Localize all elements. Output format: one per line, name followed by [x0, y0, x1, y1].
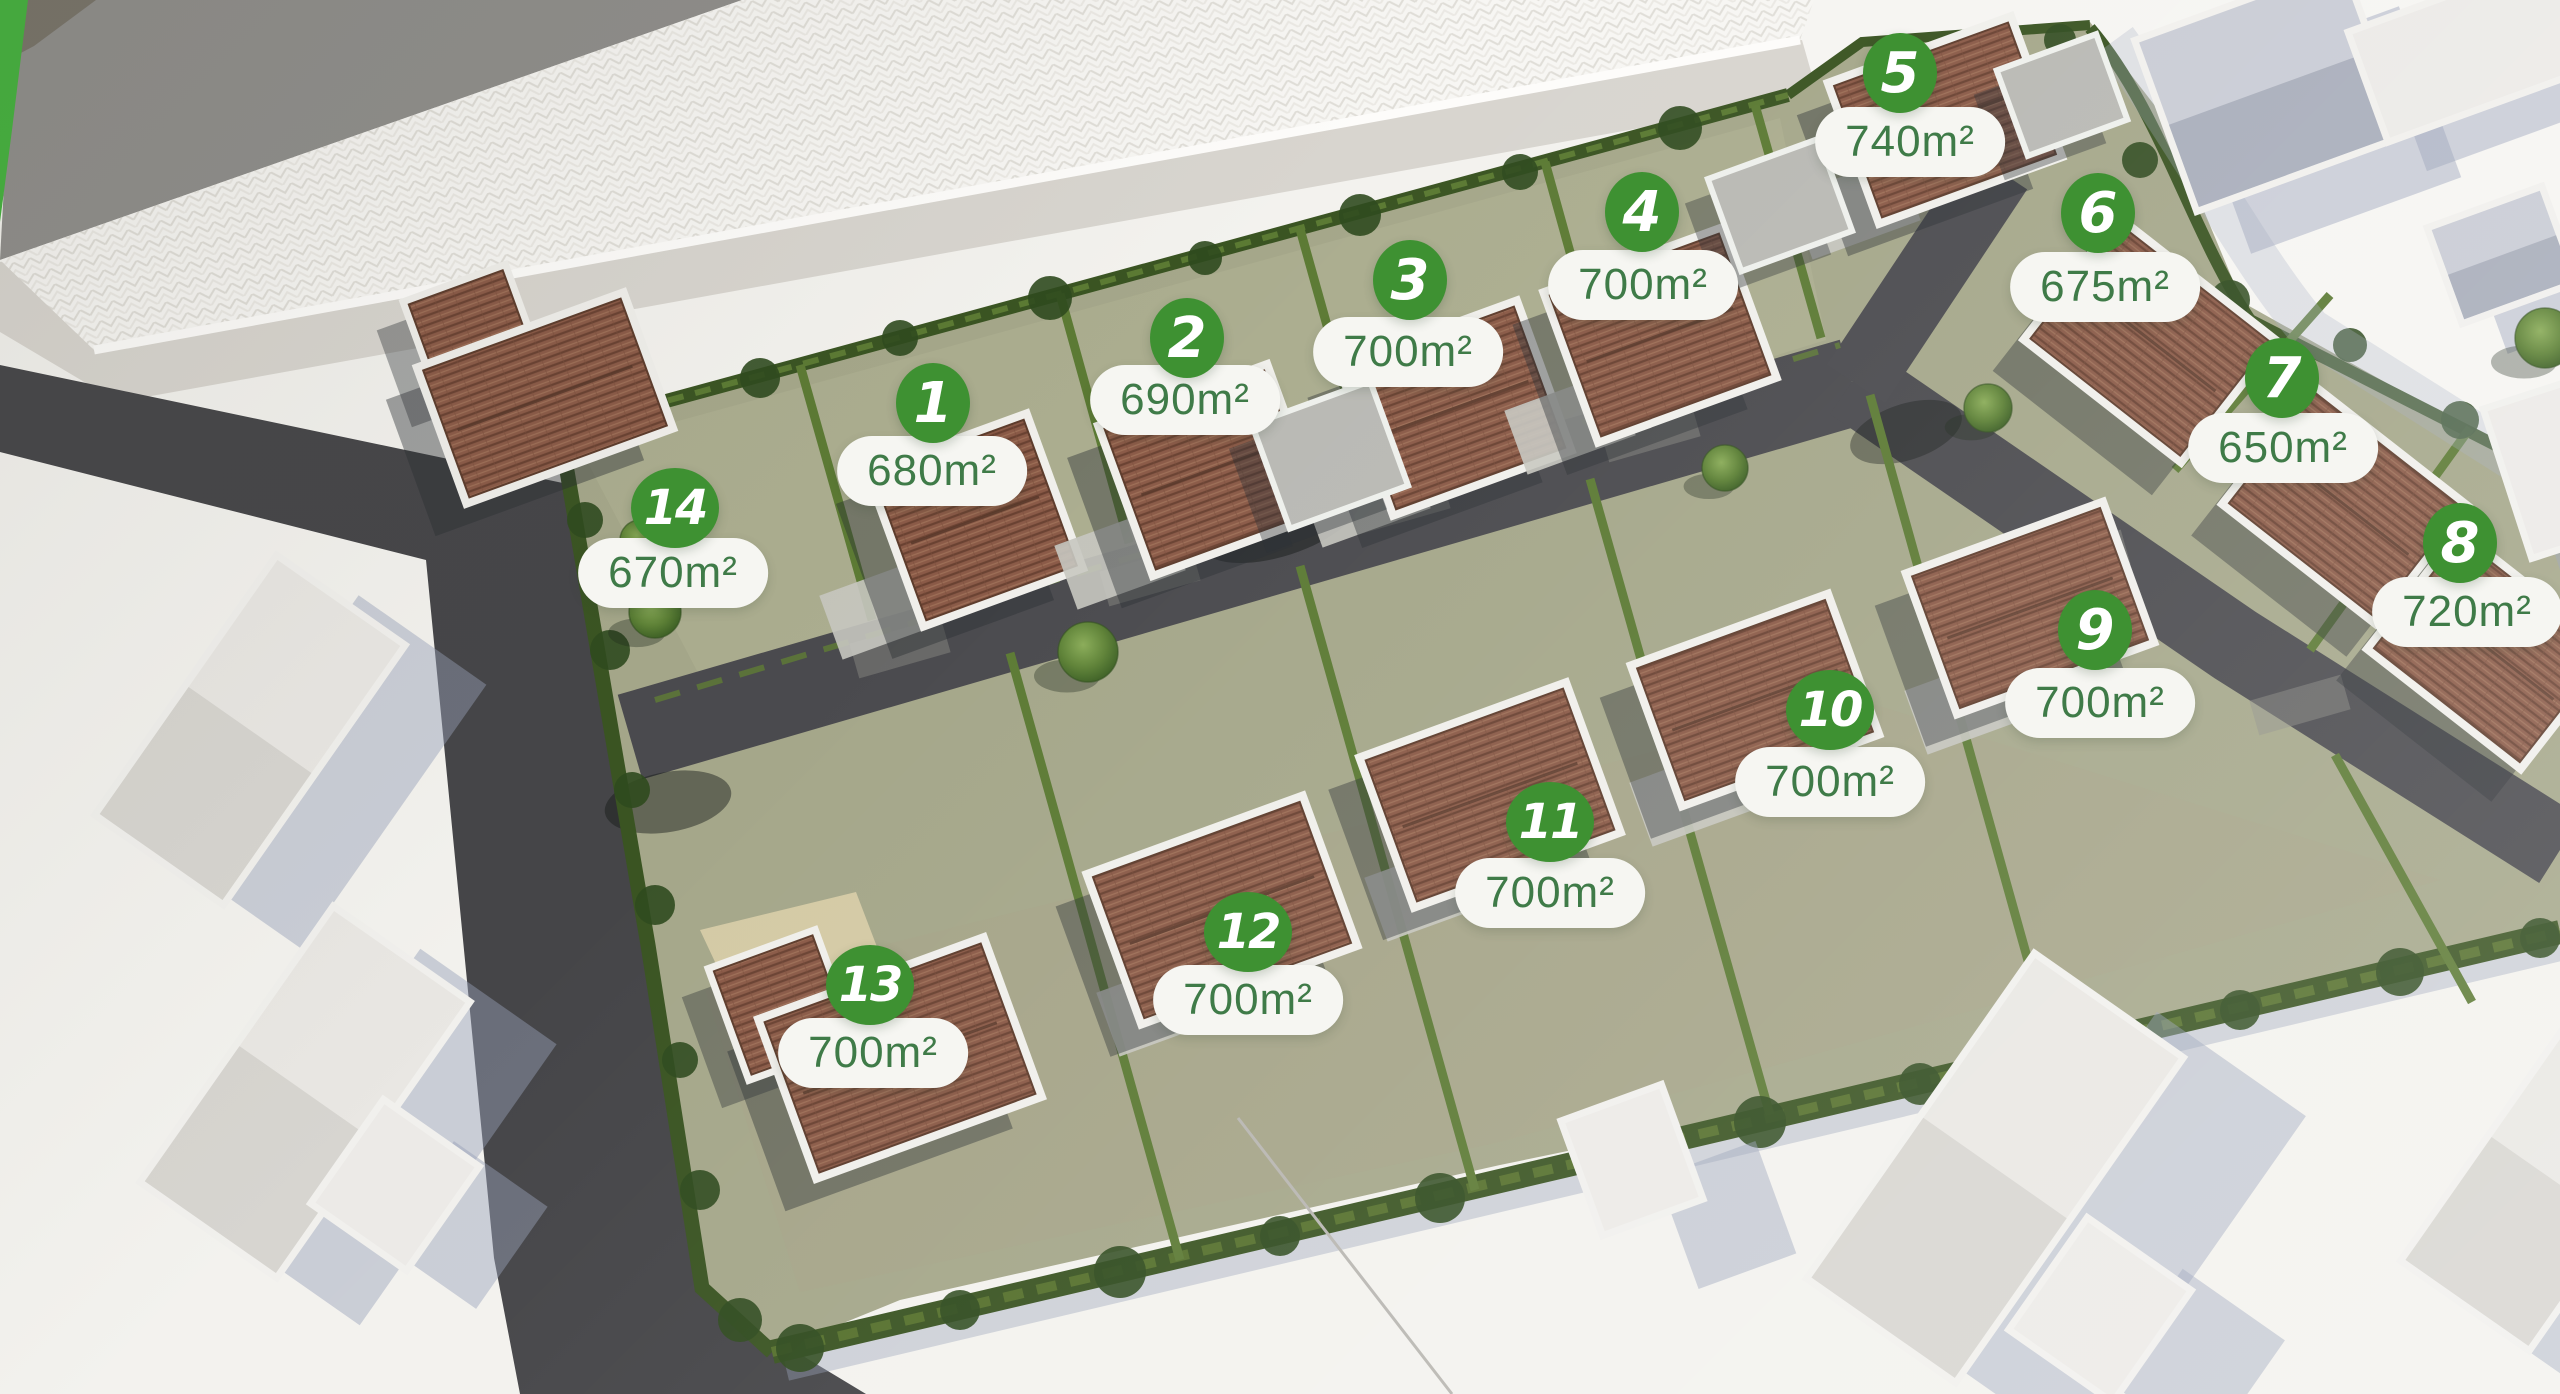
lot-area-pill: 740m² — [1815, 107, 2005, 177]
lot-area: 740m² — [1845, 117, 1975, 166]
lot-area: 700m² — [1578, 260, 1708, 309]
lot-area-pill: 700m² — [1735, 747, 1925, 817]
lot-area: 680m² — [867, 446, 997, 495]
lot-area: 700m² — [1765, 757, 1895, 806]
lot-area-pill: 675m² — [2010, 252, 2200, 322]
lot-number-badge: 11 — [1506, 782, 1594, 862]
lot-number: 7 — [2263, 346, 2302, 411]
lot-number: 9 — [2076, 598, 2115, 663]
lot-number: 12 — [1217, 904, 1280, 960]
lot-area-pill: 700m² — [2005, 668, 2195, 738]
lot-badges: 680m² 1 690m² 2 700m² 3 700m² 4 740m² 5 … — [0, 0, 2560, 1394]
lot-number: 3 — [1391, 248, 1430, 313]
lot-number: 4 — [1623, 180, 1662, 245]
lot-number-badge: 7 — [2245, 338, 2319, 418]
lot-number-badge: 6 — [2061, 173, 2135, 253]
lot-area-pill: 650m² — [2188, 413, 2378, 483]
lot-number: 10 — [1799, 682, 1862, 738]
lot-area-pill: 700m² — [778, 1018, 968, 1088]
lot-number: 13 — [839, 957, 902, 1013]
lot-area: 700m² — [808, 1028, 938, 1077]
lot-area-pill: 700m² — [1455, 858, 1645, 928]
lot-number-badge: 4 — [1605, 172, 1679, 252]
lot-area: 700m² — [1343, 327, 1473, 376]
lot-area-pill: 720m² — [2372, 577, 2560, 647]
lot-number: 11 — [1519, 794, 1582, 850]
lot-area: 700m² — [1183, 975, 1313, 1024]
lot-area: 690m² — [1120, 375, 1250, 424]
lot-number: 2 — [1168, 306, 1207, 371]
lot-number: 14 — [644, 480, 707, 536]
lot-number-badge: 5 — [1863, 33, 1937, 113]
lot-number-badge: 8 — [2423, 503, 2497, 583]
lot-number-badge: 2 — [1150, 298, 1224, 378]
lot-area: 675m² — [2040, 262, 2170, 311]
lot-area: 670m² — [608, 548, 738, 597]
site-plan-photo: 680m² 1 690m² 2 700m² 3 700m² 4 740m² 5 … — [0, 0, 2560, 1394]
lot-number-badge: 12 — [1204, 892, 1292, 972]
lot-number: 1 — [914, 371, 953, 436]
lot-number-badge: 13 — [826, 945, 914, 1025]
lot-number-badge: 9 — [2058, 590, 2132, 670]
lot-number-badge: 14 — [631, 468, 719, 548]
lot-area-pill: 680m² — [837, 436, 1027, 506]
lot-number: 6 — [2079, 181, 2118, 246]
lot-area: 650m² — [2218, 423, 2348, 472]
lot-number-badge: 3 — [1373, 240, 1447, 320]
lot-area-pill: 700m² — [1313, 317, 1503, 387]
lot-area-pill: 700m² — [1153, 965, 1343, 1035]
lot-area: 720m² — [2402, 587, 2532, 636]
lot-number: 5 — [1881, 41, 1920, 106]
lot-area: 700m² — [1485, 868, 1615, 917]
lot-number: 8 — [2441, 511, 2480, 576]
lot-number-badge: 1 — [896, 363, 970, 443]
lot-area: 700m² — [2035, 678, 2165, 727]
lot-area-pill: 670m² — [578, 538, 768, 608]
lot-area-pill: 700m² — [1548, 250, 1738, 320]
lot-number-badge: 10 — [1786, 670, 1874, 750]
